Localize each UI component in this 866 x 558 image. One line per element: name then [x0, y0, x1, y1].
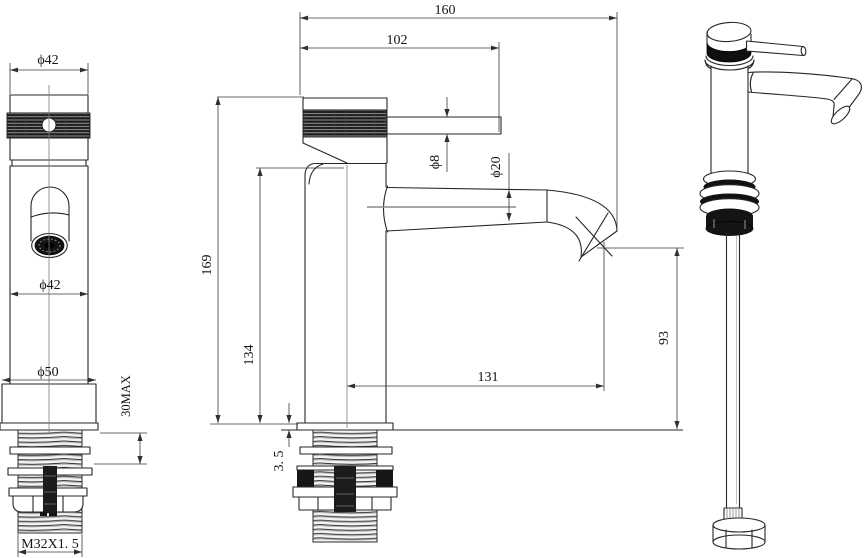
- side-flange: [297, 423, 393, 430]
- persp-cap-top: [706, 21, 751, 43]
- side-spout: [384, 186, 618, 261]
- side-cap: [303, 98, 387, 110]
- side-view: [281, 98, 683, 542]
- side-center-rod: [334, 466, 356, 512]
- front-center-rod: [43, 466, 57, 513]
- side-joint: [303, 137, 387, 184]
- persp-black-band: [707, 43, 751, 63]
- front-shank: [8, 430, 92, 533]
- side-shank: [293, 430, 397, 542]
- side-flange-thickness-label: 3. 5: [272, 451, 287, 472]
- side-handle-diameter-label: ϕ8: [428, 155, 443, 169]
- side-overall-height-label: 169: [200, 255, 215, 276]
- side-body-height-label: 134: [242, 345, 257, 366]
- technical-drawing-page: ϕ42 ϕ42 ϕ50 30MAX M32X1. 5 160 102 169 1…: [0, 0, 866, 558]
- side-washer-1: [300, 447, 392, 454]
- front-base-diameter-label: ϕ50: [37, 365, 58, 380]
- perspective-view: [700, 21, 861, 549]
- side-handle-lever: [387, 117, 501, 134]
- persp-base-rings: [700, 171, 759, 236]
- side-spout-projection-label: 131: [478, 370, 499, 385]
- side-knurl-band: [303, 110, 387, 137]
- side-spout-diameter-label: ϕ20: [489, 156, 504, 177]
- front-mount-max-label: 30MAX: [119, 375, 133, 417]
- front-cap-diameter-label: ϕ42: [37, 53, 58, 68]
- side-body: [305, 163, 386, 423]
- persp-spout: [748, 72, 861, 127]
- side-handle-projection-label: 102: [387, 33, 408, 48]
- front-washer-1: [10, 447, 90, 454]
- side-outlet-height-label: 93: [657, 331, 672, 345]
- persp-hex-nut: [713, 518, 765, 532]
- persp-base-nut: [706, 222, 753, 236]
- front-thread-spec-label: M32X1. 5: [21, 537, 79, 552]
- front-body-diameter-label: ϕ42: [39, 278, 60, 293]
- persp-body: [711, 66, 748, 177]
- faucet-technical-drawing: ϕ42 ϕ42 ϕ50 30MAX M32X1. 5 160 102 169 1…: [0, 0, 866, 558]
- persp-supply-pipe: [713, 233, 765, 549]
- persp-handle-lever: [747, 41, 807, 56]
- side-overall-projection-label: 160: [435, 3, 456, 18]
